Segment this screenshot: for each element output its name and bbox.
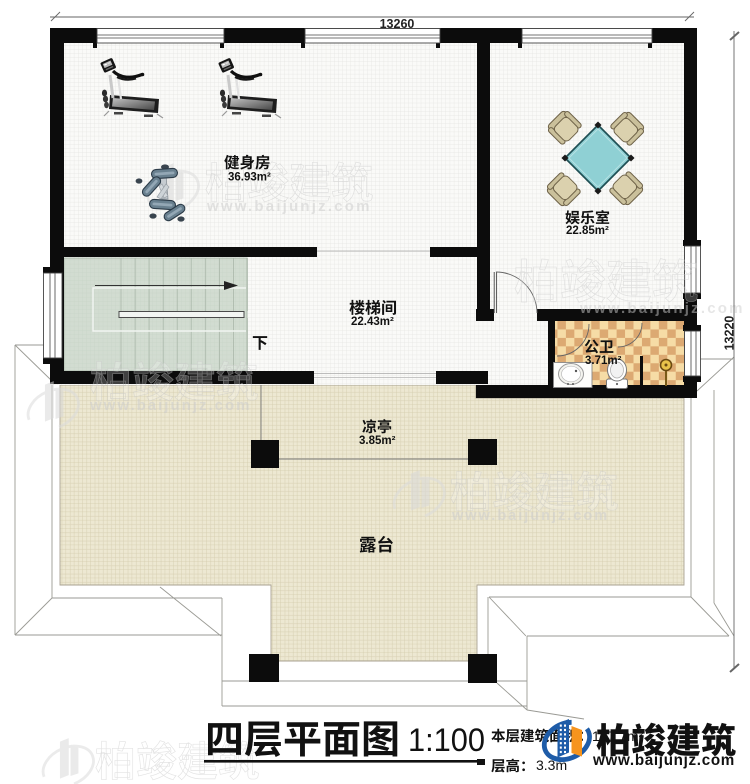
svg-text:3.71m²: 3.71m² bbox=[585, 355, 622, 367]
svg-text:www.baijunjz.com: www.baijunjz.com bbox=[451, 508, 609, 524]
svg-text:www.baijunjz.com: www.baijunjz.com bbox=[592, 752, 735, 769]
svg-text:22.43m²: 22.43m² bbox=[351, 316, 394, 328]
svg-text:www.baijunjz.com: www.baijunjz.com bbox=[89, 397, 251, 414]
svg-text:www.baijunjz.com: www.baijunjz.com bbox=[206, 198, 372, 215]
svg-text:13220: 13220 bbox=[723, 316, 737, 351]
svg-text:13260: 13260 bbox=[380, 17, 415, 31]
svg-text:1:100: 1:100 bbox=[408, 722, 485, 758]
svg-text:www.baijunjz.com: www.baijunjz.com bbox=[579, 300, 745, 317]
svg-text:22.85m²: 22.85m² bbox=[566, 225, 609, 237]
svg-text:36.93m²: 36.93m² bbox=[228, 172, 271, 184]
svg-text:3.85m²: 3.85m² bbox=[359, 435, 396, 447]
